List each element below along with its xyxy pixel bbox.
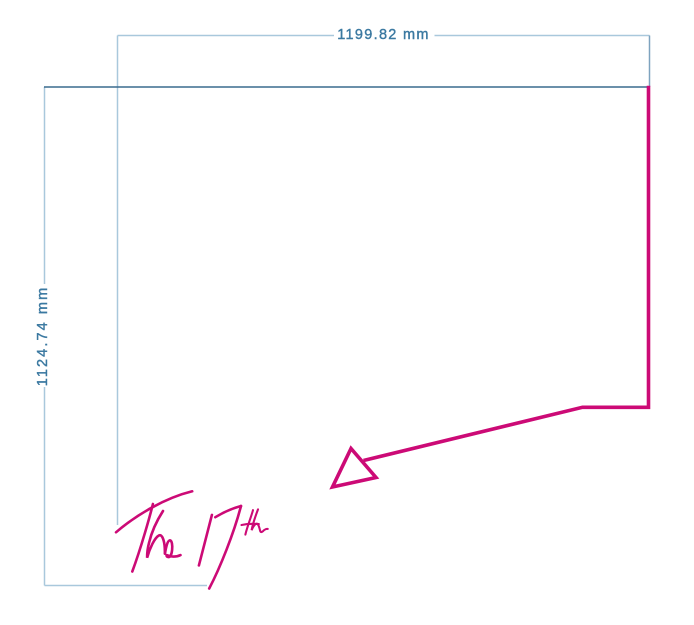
svg-text:1199.82 mm: 1199.82 mm [337, 27, 430, 43]
svg-text:1124.74 mm: 1124.74 mm [35, 286, 51, 387]
